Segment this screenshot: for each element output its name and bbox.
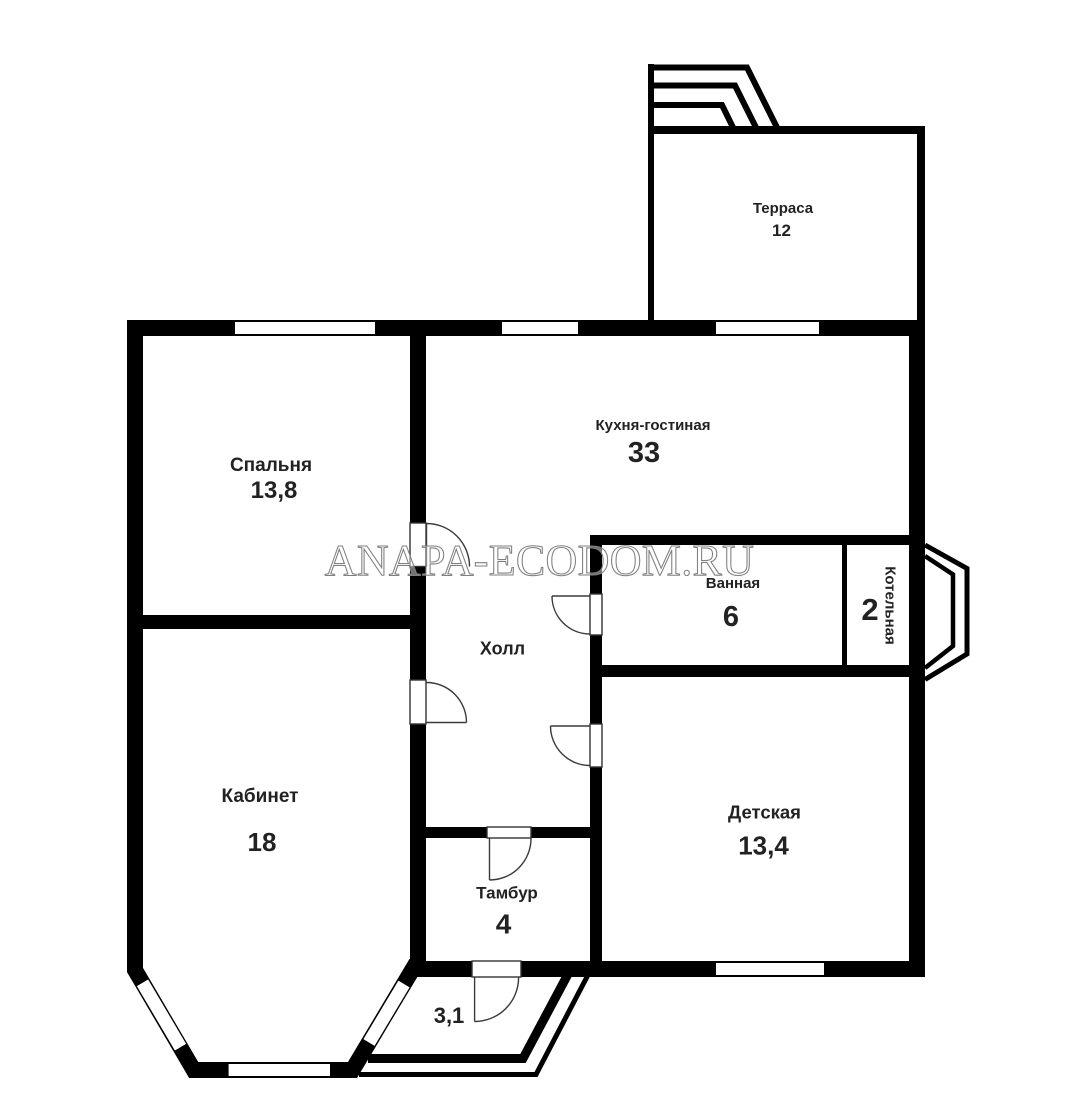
svg-text:ANAPA-ECODOM.RU: ANAPA-ECODOM.RU	[325, 536, 754, 585]
svg-text:Кабинет: Кабинет	[222, 786, 299, 807]
svg-text:Терраса: Терраса	[753, 200, 814, 217]
svg-text:2: 2	[861, 592, 878, 627]
svg-text:Ванная: Ванная	[706, 575, 760, 592]
svg-text:Кухня-гостиная: Кухня-гостиная	[596, 417, 711, 434]
svg-text:13,8: 13,8	[251, 477, 298, 504]
svg-text:Котельная: Котельная	[882, 566, 899, 645]
svg-text:Спальня: Спальня	[230, 455, 312, 476]
svg-text:3,1: 3,1	[434, 1003, 465, 1028]
svg-text:4: 4	[496, 909, 512, 940]
svg-text:6: 6	[723, 601, 739, 633]
svg-text:13,4: 13,4	[738, 831, 789, 861]
svg-text:12: 12	[772, 221, 791, 240]
svg-text:Детская: Детская	[728, 802, 801, 823]
svg-text:18: 18	[248, 827, 277, 857]
svg-text:33: 33	[628, 437, 660, 469]
svg-text:Тамбур: Тамбур	[476, 884, 538, 903]
svg-text:Холл: Холл	[480, 639, 525, 659]
